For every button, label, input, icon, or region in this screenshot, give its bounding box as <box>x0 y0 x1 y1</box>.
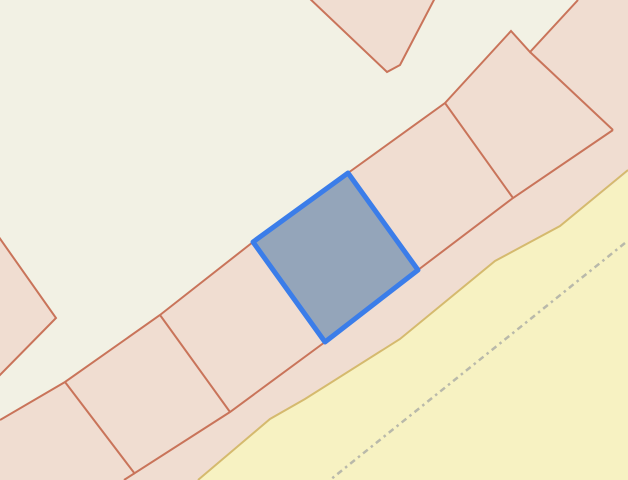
map-canvas[interactable] <box>0 0 628 480</box>
map-viewport[interactable] <box>0 0 628 480</box>
